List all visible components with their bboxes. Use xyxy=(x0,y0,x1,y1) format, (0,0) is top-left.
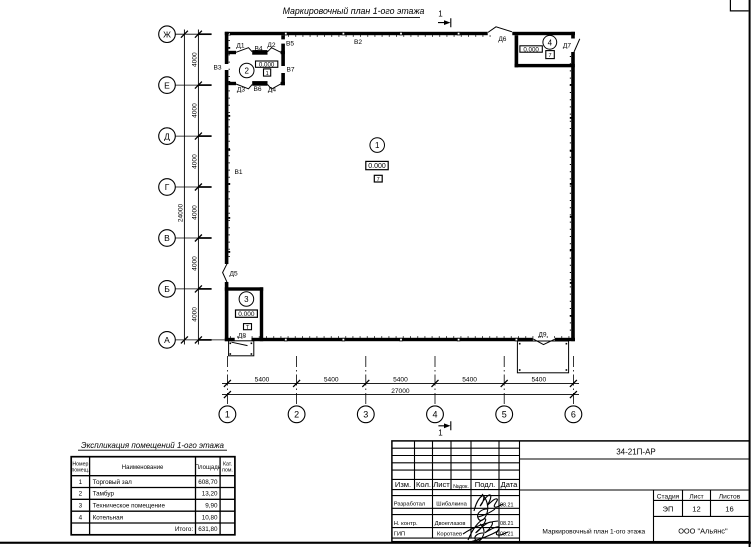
svg-text:4000: 4000 xyxy=(192,256,199,271)
svg-text:631,80: 631,80 xyxy=(198,526,218,533)
svg-text:0.000: 0.000 xyxy=(259,61,275,68)
svg-text:Маркировочный план 1-ого этажа: Маркировочный план 1-ого этажа xyxy=(542,527,645,535)
svg-text:7: 7 xyxy=(548,53,551,59)
svg-text:4: 4 xyxy=(432,410,437,420)
svg-text:1: 1 xyxy=(375,141,380,150)
svg-text:4000: 4000 xyxy=(192,52,199,67)
svg-text:Изм.: Изм. xyxy=(395,480,411,489)
svg-text:Д: Д xyxy=(164,131,170,141)
svg-text:ООО "Альянс": ООО "Альянс" xyxy=(678,526,728,535)
svg-text:4: 4 xyxy=(79,514,83,521)
svg-text:Г: Г xyxy=(165,182,170,192)
svg-text:6: 6 xyxy=(571,410,576,420)
svg-text:Наименование: Наименование xyxy=(122,465,164,471)
svg-text:5400: 5400 xyxy=(393,377,408,384)
svg-text:В2: В2 xyxy=(354,39,362,46)
svg-text:Подл.: Подл. xyxy=(475,480,496,489)
svg-text:Б: Б xyxy=(164,284,170,294)
svg-text:Листов: Листов xyxy=(719,493,741,500)
svg-text:Тамбур: Тамбур xyxy=(93,490,115,498)
svg-text:Шибалкина: Шибалкина xyxy=(436,502,467,508)
svg-text:24000: 24000 xyxy=(178,204,185,223)
svg-text:Д8: Д8 xyxy=(238,332,246,339)
svg-text:5400: 5400 xyxy=(324,377,339,384)
svg-text:3: 3 xyxy=(363,410,368,420)
svg-text:Лист: Лист xyxy=(689,493,703,500)
svg-text:№док.: №док. xyxy=(453,484,469,490)
svg-text:Стадия: Стадия xyxy=(657,493,680,500)
svg-text:Д3: Д3 xyxy=(237,87,245,94)
svg-text:7: 7 xyxy=(377,177,380,183)
svg-text:Д9: Д9 xyxy=(538,332,546,339)
svg-text:Маркировочный план 1-ого этажа: Маркировочный план 1-ого этажа xyxy=(283,6,425,16)
svg-text:Е: Е xyxy=(164,80,170,90)
svg-text:Итого:: Итого: xyxy=(175,526,194,533)
svg-text:В7: В7 xyxy=(286,67,294,74)
svg-text:В3: В3 xyxy=(213,65,221,72)
svg-text:5400: 5400 xyxy=(462,377,477,384)
svg-text:10,80: 10,80 xyxy=(202,514,218,521)
svg-text:помещ.: помещ. xyxy=(71,467,89,473)
svg-text:08.21: 08.21 xyxy=(500,521,514,527)
svg-text:А: А xyxy=(164,335,170,345)
svg-text:2: 2 xyxy=(294,410,299,420)
svg-text:5400: 5400 xyxy=(531,377,546,384)
svg-text:1: 1 xyxy=(438,428,443,437)
svg-text:Дата: Дата xyxy=(501,480,519,489)
svg-text:В5: В5 xyxy=(286,41,294,48)
svg-text:Площадь: Площадь xyxy=(195,465,221,471)
svg-text:Котельная: Котельная xyxy=(93,514,123,521)
svg-text:1: 1 xyxy=(79,479,83,486)
svg-text:В: В xyxy=(164,233,170,243)
svg-text:Д6: Д6 xyxy=(498,36,506,43)
svg-text:0.000: 0.000 xyxy=(238,311,255,318)
svg-text:Экспликация помещений 1-ого эт: Экспликация помещений 1-ого этажа xyxy=(81,441,224,450)
svg-text:1: 1 xyxy=(225,410,230,420)
svg-text:4000: 4000 xyxy=(192,307,199,322)
svg-text:Двоеглазов: Двоеглазов xyxy=(435,521,466,527)
svg-text:4000: 4000 xyxy=(192,154,199,169)
svg-text:ГИП: ГИП xyxy=(394,531,405,537)
svg-text:34-21П-АР: 34-21П-АР xyxy=(616,448,656,457)
svg-text:2: 2 xyxy=(244,67,249,76)
svg-text:Разработал: Разработал xyxy=(394,502,426,508)
svg-text:5: 5 xyxy=(502,410,507,420)
svg-text:В4: В4 xyxy=(254,45,262,52)
svg-text:В1: В1 xyxy=(234,169,242,176)
svg-text:В6: В6 xyxy=(253,86,261,93)
svg-text:5400: 5400 xyxy=(255,377,270,384)
svg-text:Д2: Д2 xyxy=(267,42,275,49)
svg-text:1: 1 xyxy=(438,10,443,19)
svg-text:2: 2 xyxy=(79,491,83,498)
svg-text:Д4: Д4 xyxy=(268,87,276,94)
svg-text:9,90: 9,90 xyxy=(205,503,218,510)
svg-text:Коротаев: Коротаев xyxy=(437,531,462,537)
svg-text:27000: 27000 xyxy=(391,388,410,395)
svg-text:Д5: Д5 xyxy=(230,270,238,277)
svg-text:0.000: 0.000 xyxy=(523,46,539,53)
svg-text:Кол.: Кол. xyxy=(416,480,431,489)
svg-text:1: 1 xyxy=(266,71,269,77)
svg-text:Торговый зал: Торговый зал xyxy=(93,478,133,486)
svg-text:пом.: пом. xyxy=(222,467,233,473)
svg-text:3: 3 xyxy=(244,295,249,304)
svg-text:3: 3 xyxy=(79,503,83,510)
svg-text:Д7: Д7 xyxy=(563,43,571,50)
svg-text:ЭП: ЭП xyxy=(663,504,674,513)
svg-text:608,70: 608,70 xyxy=(198,479,218,486)
svg-text:Н. контр.: Н. контр. xyxy=(394,521,418,527)
svg-text:12: 12 xyxy=(692,504,700,513)
svg-text:4: 4 xyxy=(548,38,553,47)
svg-text:4000: 4000 xyxy=(192,205,199,220)
svg-text:Техническое помещение: Техническое помещение xyxy=(93,503,166,510)
svg-text:0.000: 0.000 xyxy=(368,163,386,170)
svg-text:13,20: 13,20 xyxy=(202,491,218,498)
svg-text:4000: 4000 xyxy=(192,103,199,118)
svg-text:08.21: 08.21 xyxy=(500,502,514,508)
svg-text:Ж: Ж xyxy=(163,29,171,39)
svg-text:16: 16 xyxy=(725,504,733,513)
svg-text:Д1: Д1 xyxy=(236,43,244,50)
svg-text:Лист: Лист xyxy=(433,480,450,489)
